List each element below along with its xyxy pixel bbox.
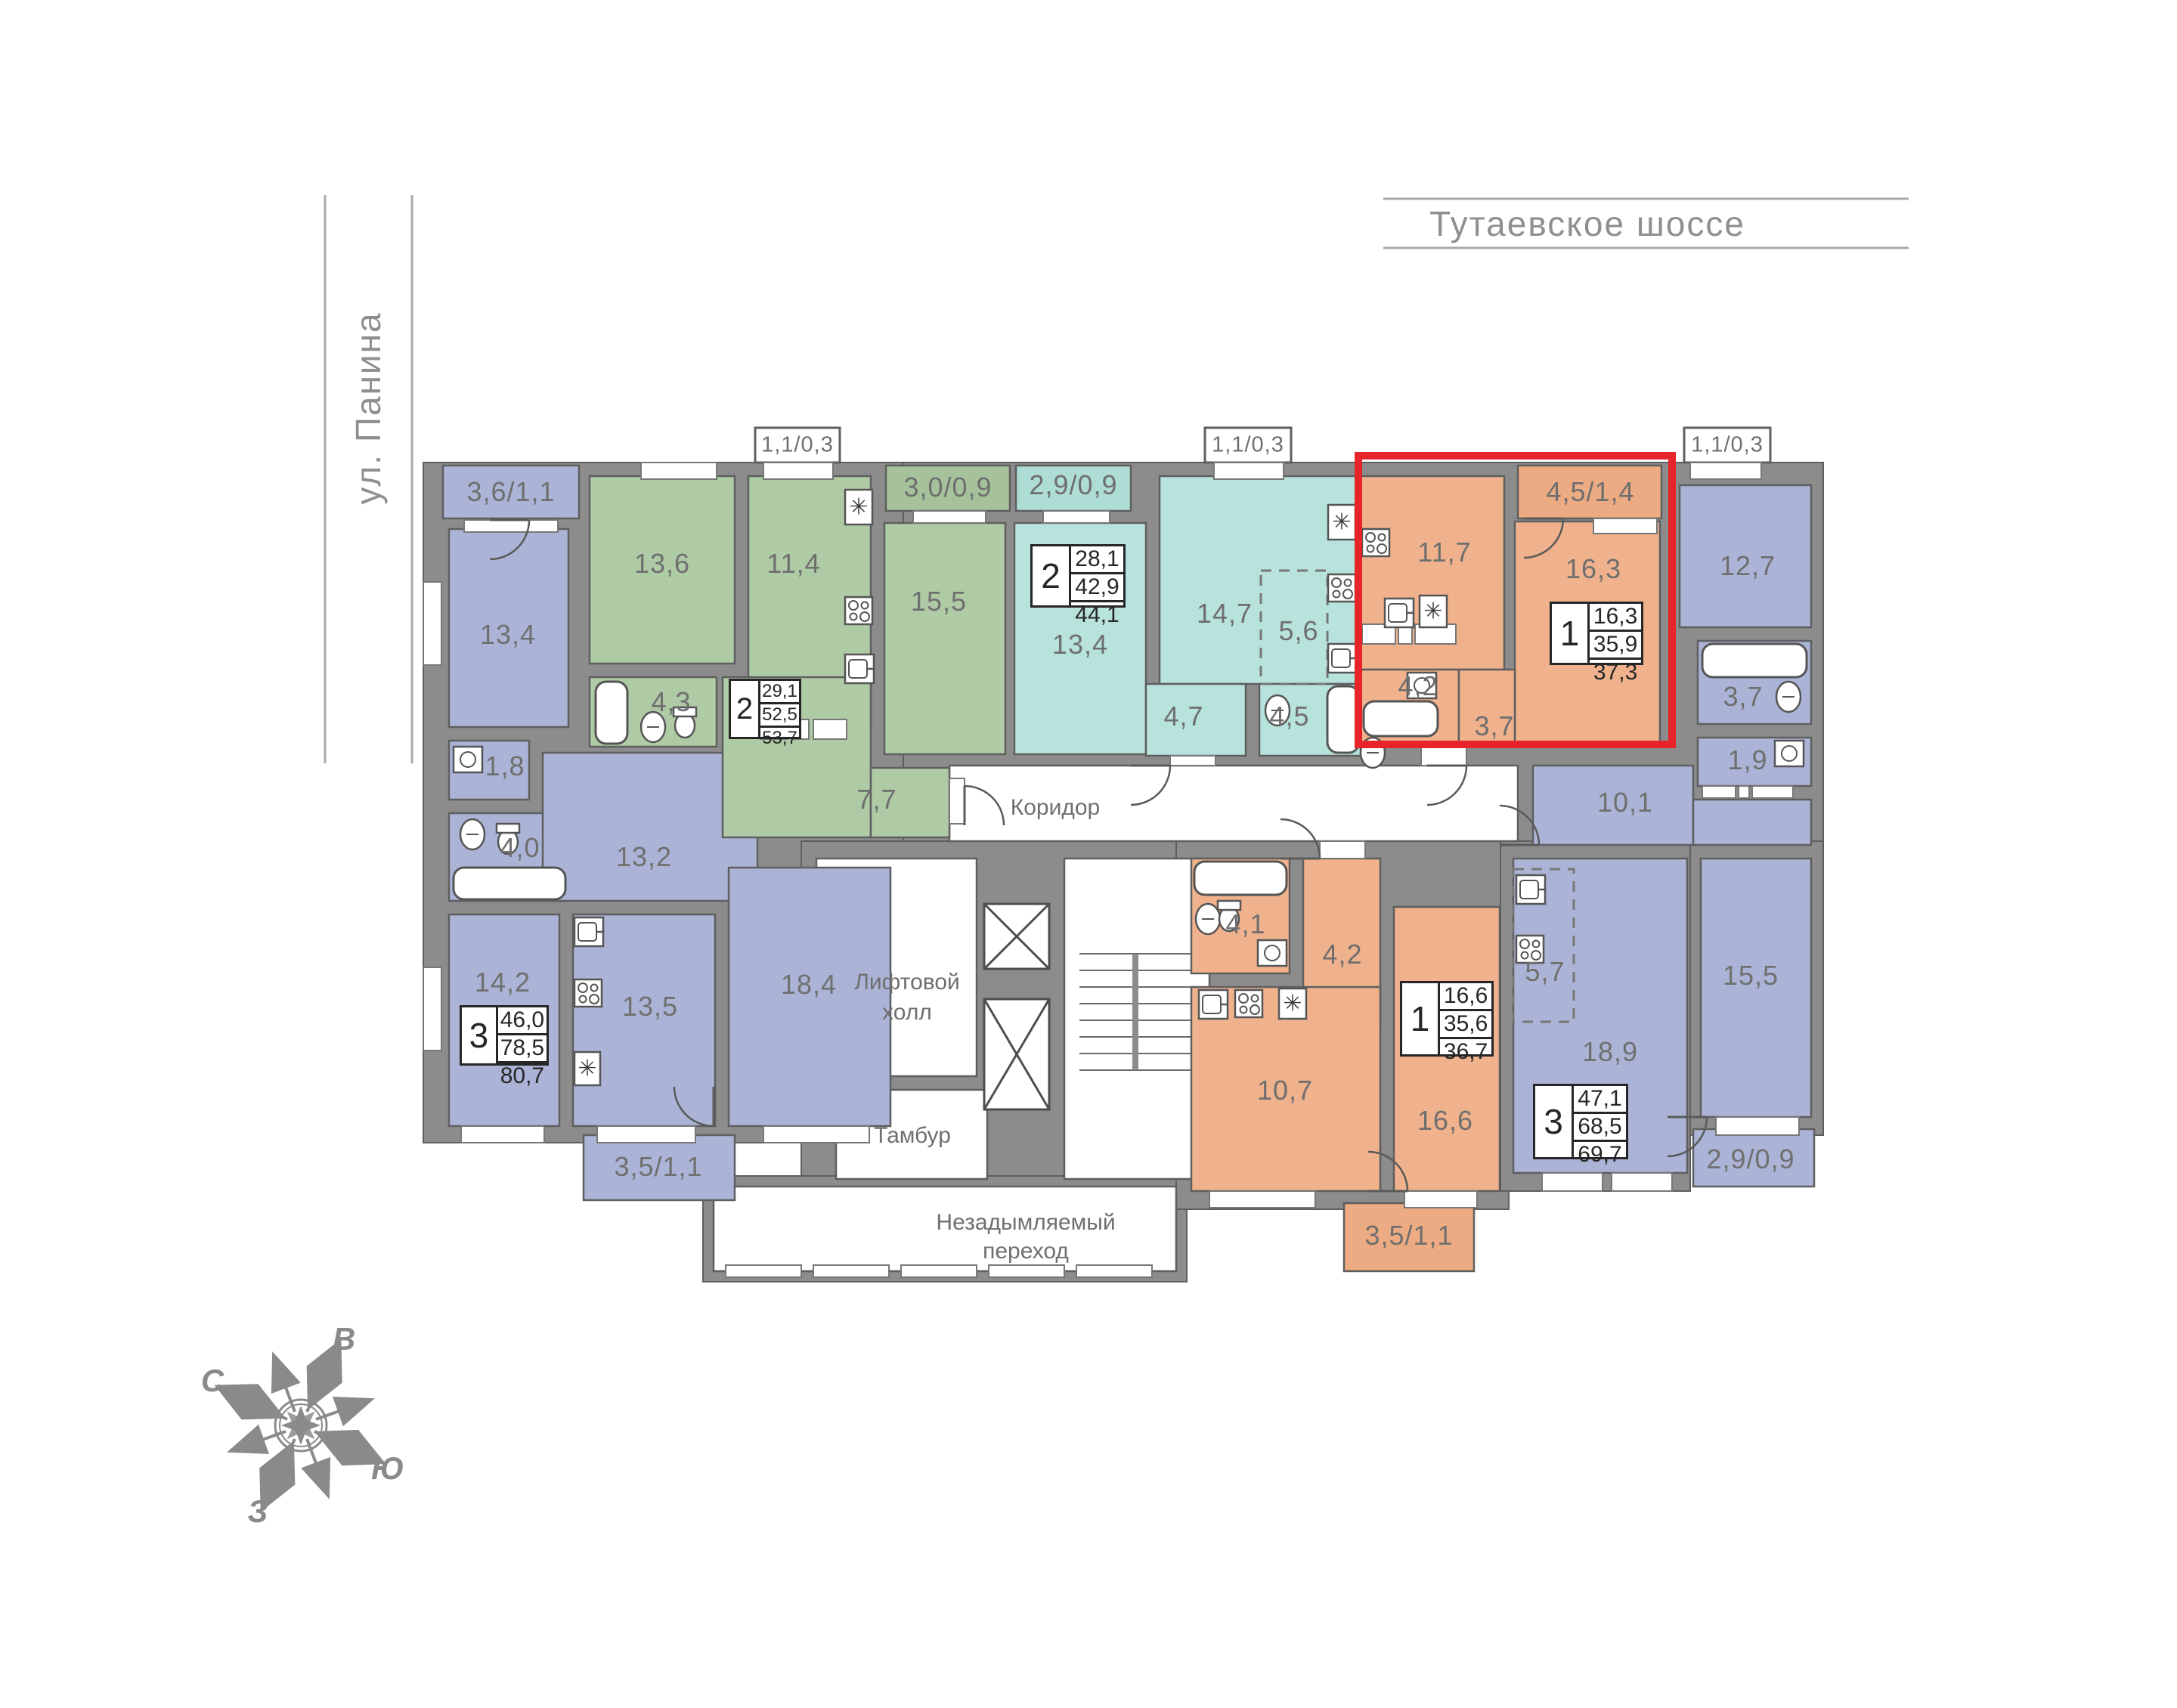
spec-area: 52,5 <box>760 702 799 726</box>
area-green2-balcony: 3,0/0,9 <box>903 472 992 503</box>
area-green2-bedroom: 13,6 <box>634 548 690 580</box>
spec-box-orange1[interactable]: 1 16,6 35,6 36,7 <box>1400 981 1494 1057</box>
area-right3-wc: 1,9 <box>1727 744 1767 776</box>
area-orange1-kitchen: 10,7 <box>1257 1075 1313 1106</box>
vestibule-label: Тамбур <box>874 1123 951 1149</box>
compass-icon <box>225 1349 376 1502</box>
spec-total: 53,7 <box>760 726 799 749</box>
area-right3-kitchen: 5,7 <box>1525 956 1565 988</box>
spec-area: 78,5 <box>498 1033 547 1061</box>
elevator-hall-label-2: холл <box>882 1000 932 1026</box>
room-15-5 <box>884 523 1005 754</box>
area-teal2-hall: 4,7 <box>1163 701 1203 732</box>
floorplan-page: Тутаевское шоссе ул. Панина В С Ю З Кори… <box>0 0 2177 1708</box>
area-teal2-balcony: 2,9/0,9 <box>1029 469 1117 501</box>
spec-area: 35,6 <box>1440 1009 1491 1037</box>
compass-west-label: З <box>248 1493 268 1530</box>
area-left3-kitchen: 13,5 <box>622 991 678 1023</box>
passage-label-1: Незадымляемый <box>936 1210 1115 1236</box>
area-teal2-balcony-small: 1,1/0,3 <box>1212 433 1284 458</box>
spec-room-count: 1 <box>1552 604 1590 663</box>
area-right3-bedroom1: 12,7 <box>1720 550 1776 582</box>
spec-living: 28,1 <box>1071 546 1123 572</box>
spec-area: 68,5 <box>1574 1112 1626 1140</box>
spec-total: 37,3 <box>1590 658 1641 685</box>
elevator-hall-label-1: Лифтовой <box>854 970 960 995</box>
spec-room-count: 3 <box>462 1007 498 1063</box>
compass-south-label: Ю <box>371 1450 404 1487</box>
fridge-icon: ✳ <box>1332 509 1351 536</box>
area-orange1-bath: 4,1 <box>1225 908 1265 940</box>
passage-label-2: переход <box>983 1239 1069 1264</box>
spec-room-count: 3 <box>1535 1086 1574 1157</box>
spec-living: 16,6 <box>1440 983 1491 1009</box>
fridge-icon: ✳ <box>578 1056 596 1082</box>
area-left3-bedroom2: 14,2 <box>475 967 531 998</box>
area-right3-balcony-small: 1,1/0,3 <box>1691 433 1764 458</box>
area-green2-hall: 7,7 <box>856 784 897 815</box>
area-teal2-kitchen: 5,6 <box>1278 615 1318 647</box>
spec-living: 29,1 <box>760 681 799 702</box>
area-red1-bath: 4,2 <box>1398 670 1438 702</box>
area-orange1-balcony: 3,5/1,1 <box>1364 1220 1453 1252</box>
room-10-1b <box>1693 800 1811 845</box>
floorplan-drawing <box>0 0 2177 1708</box>
fridge-icon: ✳ <box>849 494 868 521</box>
spec-area: 42,9 <box>1071 572 1123 600</box>
area-left3-bath: 4,0 <box>500 832 540 864</box>
area-left3-hall: 13,2 <box>616 841 672 873</box>
area-green2-kitchen: 11,4 <box>766 548 820 580</box>
area-left3-balcony-bottom: 3,5/1,1 <box>614 1151 702 1183</box>
area-green2-balcony-small: 1,1/0,3 <box>761 433 834 458</box>
spec-total: 36,7 <box>1440 1037 1491 1065</box>
area-left3-living: 18,4 <box>781 969 837 1001</box>
spec-room-count: 1 <box>1402 983 1440 1054</box>
area-teal2-bedroom: 13,4 <box>1052 629 1108 661</box>
street-label-left: ул. Панина <box>348 311 389 504</box>
spec-box-right3[interactable]: 3 47,1 68,5 69,7 <box>1533 1084 1628 1159</box>
area-orange1-hall: 4,2 <box>1322 939 1362 970</box>
area-green2-living: 15,5 <box>911 586 967 617</box>
spec-box-red1[interactable]: 1 16,3 35,9 37,3 <box>1550 602 1643 665</box>
corridor-label: Коридор <box>1011 795 1100 821</box>
spec-living: 47,1 <box>1574 1086 1626 1112</box>
spec-room-count: 2 <box>1033 546 1071 605</box>
spec-total: 69,7 <box>1574 1140 1626 1168</box>
area-left3-bedroom1: 13,4 <box>480 619 536 651</box>
spec-living: 46,0 <box>498 1007 547 1033</box>
spec-box-green2[interactable]: 2 29,1 52,5 53,7 <box>729 679 801 739</box>
area-right3-hall: 10,1 <box>1597 787 1653 818</box>
fridge-icon: ✳ <box>1423 599 1442 625</box>
area-red1-living: 16,3 <box>1565 553 1621 585</box>
area-red1-kitchen: 11,7 <box>1417 537 1471 568</box>
street-label-top: Тутаевское шоссе <box>1429 203 1745 244</box>
spec-box-teal2[interactable]: 2 28,1 42,9 44,1 <box>1030 544 1126 608</box>
compass-north-label: С <box>201 1363 224 1399</box>
compass-east-label: В <box>333 1321 355 1357</box>
area-left3-balcony-top: 3,6/1,1 <box>466 476 555 508</box>
spec-area: 35,9 <box>1590 630 1641 658</box>
spec-room-count: 2 <box>731 681 760 737</box>
spec-total: 44,1 <box>1071 600 1123 628</box>
spec-total: 80,7 <box>498 1061 547 1089</box>
area-red1-balcony: 4,5/1,4 <box>1546 476 1634 508</box>
area-teal2-living: 14,7 <box>1197 598 1253 630</box>
spec-living: 16,3 <box>1590 604 1641 630</box>
area-green2-bath: 4,3 <box>651 686 691 718</box>
area-left3-wc: 1,8 <box>485 750 525 782</box>
area-right3-bedroom2: 15,5 <box>1723 960 1779 992</box>
area-orange1-living: 16,6 <box>1417 1105 1473 1137</box>
elevator-shafts <box>984 904 1049 1109</box>
fridge-icon: ✳ <box>1283 991 1302 1017</box>
area-red1-hall: 3,7 <box>1474 710 1514 742</box>
area-right3-bath: 3,7 <box>1723 681 1763 713</box>
area-right3-living: 18,9 <box>1582 1036 1638 1068</box>
spec-box-left3[interactable]: 3 46,0 78,5 80,7 <box>460 1005 549 1066</box>
area-right3-balcony: 2,9/0,9 <box>1706 1143 1795 1175</box>
area-teal2-bath: 4,5 <box>1269 701 1309 732</box>
